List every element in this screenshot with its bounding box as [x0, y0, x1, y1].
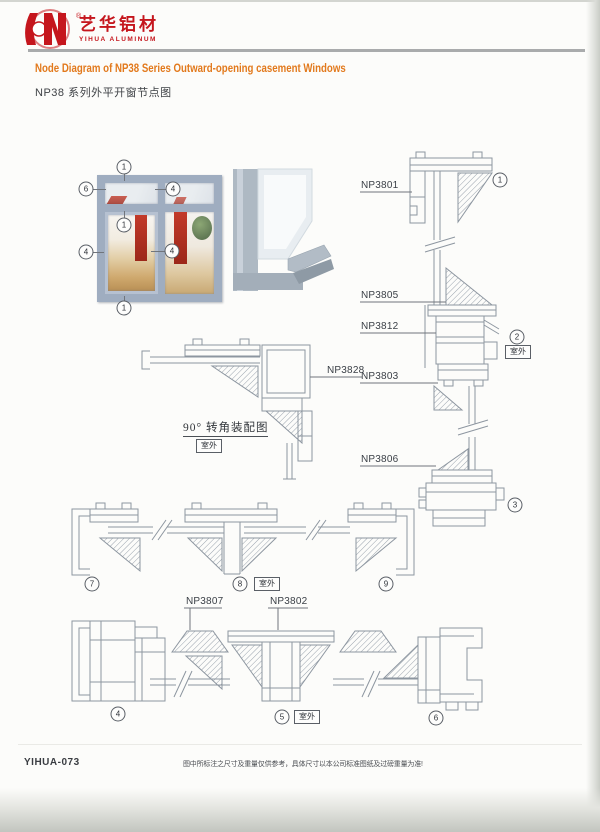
page-edge-bottom	[0, 788, 600, 832]
section-number-1: 1	[493, 173, 508, 188]
part-label-np3802: NP3802	[270, 596, 307, 607]
section-number-2: 2	[510, 330, 525, 345]
part-label-np3828: NP3828	[327, 365, 364, 376]
section-number-9: 9	[379, 577, 394, 592]
outdoor-badge-bottom: 室外	[294, 710, 320, 724]
part-label-np3812: NP3812	[361, 321, 398, 332]
part-label-np3807: NP3807	[186, 596, 223, 607]
part-label-np3805: NP3805	[361, 290, 398, 301]
part-label-np3801: NP3801	[361, 180, 398, 191]
part-label-np3806: NP3806	[361, 454, 398, 465]
section-number-5: 5	[275, 710, 290, 725]
outdoor-badge-right: 室外	[505, 345, 531, 359]
outdoor-badge-corner: 室外	[196, 439, 222, 453]
footer-rule	[18, 744, 582, 745]
page: { "brand": {"name_cn": "艺华铝材", "name_en"…	[0, 0, 600, 832]
section-number-8: 8	[233, 577, 248, 592]
corner-caption: 90° 转角装配图	[183, 419, 268, 437]
section-number-3: 3	[508, 498, 523, 513]
part-label-np3803: NP3803	[361, 371, 398, 382]
technical-linework	[0, 0, 600, 832]
page-edge-right	[586, 0, 600, 832]
section-number-4: 4	[111, 707, 126, 722]
section-number-6: 6	[429, 711, 444, 726]
page-edge-top	[0, 0, 600, 2]
outdoor-badge-middle: 室外	[254, 577, 280, 591]
footer-code: YIHUA-073	[24, 757, 80, 768]
footer-disclaimer: 图中所标注之尺寸及重量仅供参考，具体尺寸以本公司标准图纸及过磅重量为准!	[183, 759, 423, 769]
section-number-7: 7	[85, 577, 100, 592]
